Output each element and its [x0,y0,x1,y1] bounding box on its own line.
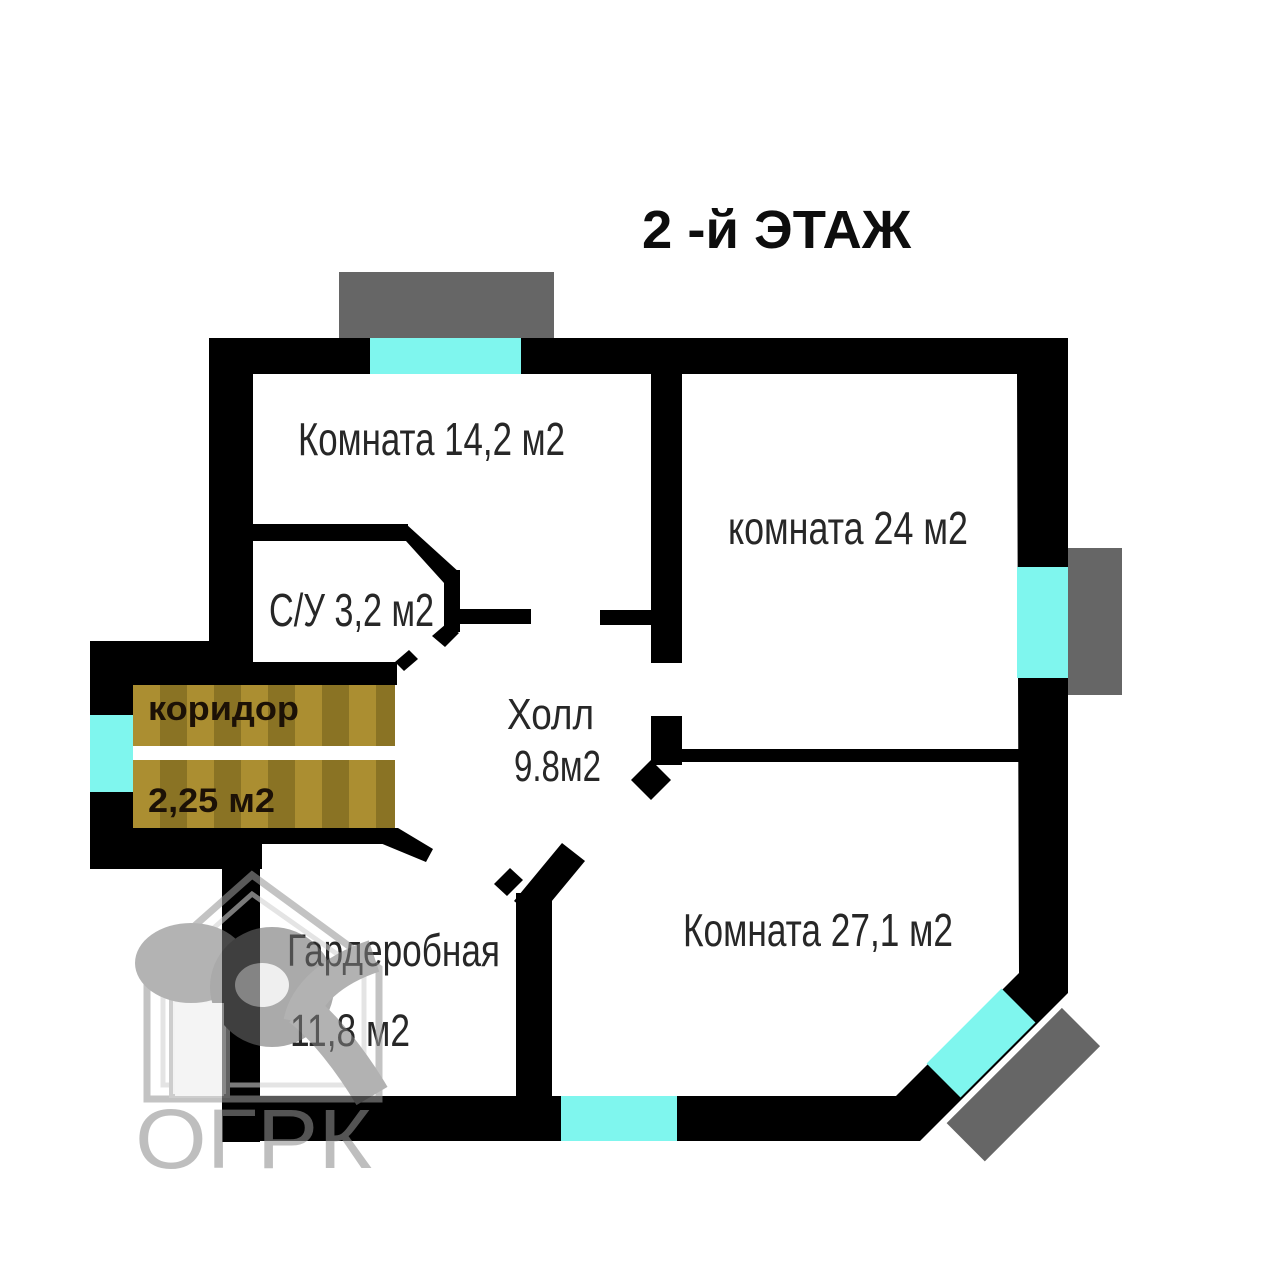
svg-text:2,25 м2: 2,25 м2 [148,782,275,820]
svg-text:Комната 14,2 м2: Комната 14,2 м2 [298,413,565,465]
svg-text:коридор: коридор [148,690,299,728]
svg-text:2 -й ЭТАЖ: 2 -й ЭТАЖ [642,200,912,260]
svg-text:9.8м2: 9.8м2 [514,742,601,791]
svg-text:С/У 3,2 м2: С/У 3,2 м2 [269,584,434,636]
svg-text:Холл: Холл [507,690,594,739]
svg-text:Комната 27,1 м2: Комната 27,1 м2 [683,904,953,956]
svg-text:ОГРК: ОГРК [135,1092,372,1186]
svg-text:комната 24 м2: комната 24 м2 [728,502,968,554]
